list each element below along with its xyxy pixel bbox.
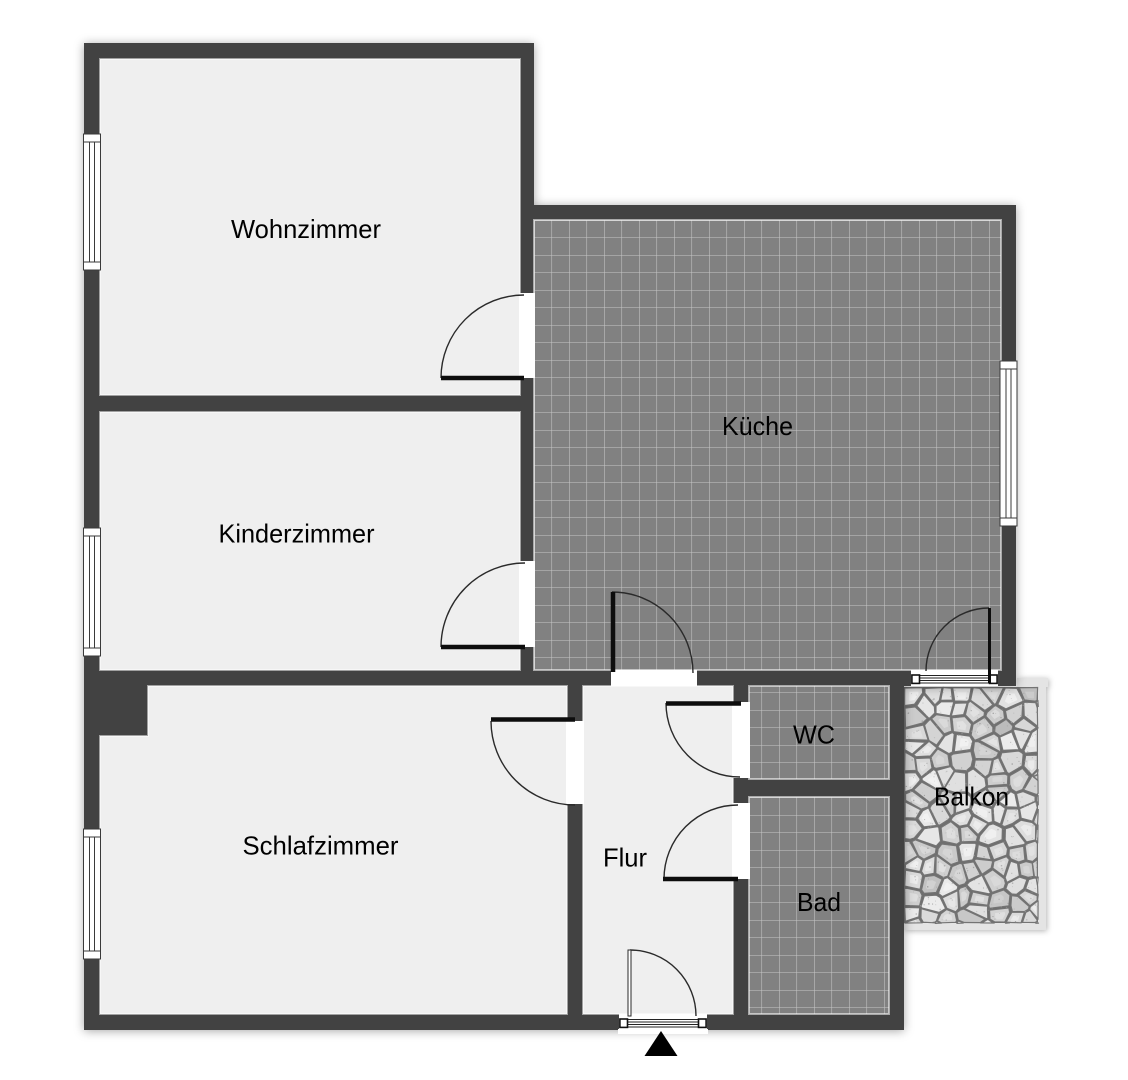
svg-text:Bad: Bad — [797, 887, 841, 917]
svg-text:WC: WC — [793, 720, 835, 750]
svg-text:Flur: Flur — [603, 843, 647, 873]
svg-text:Küche: Küche — [722, 411, 793, 441]
svg-text:Schlafzimmer: Schlafzimmer — [243, 831, 399, 861]
svg-text:Wohnzimmer: Wohnzimmer — [231, 214, 381, 244]
svg-text:Kinderzimmer: Kinderzimmer — [219, 519, 375, 549]
svg-text:Balkon: Balkon — [934, 782, 1009, 812]
